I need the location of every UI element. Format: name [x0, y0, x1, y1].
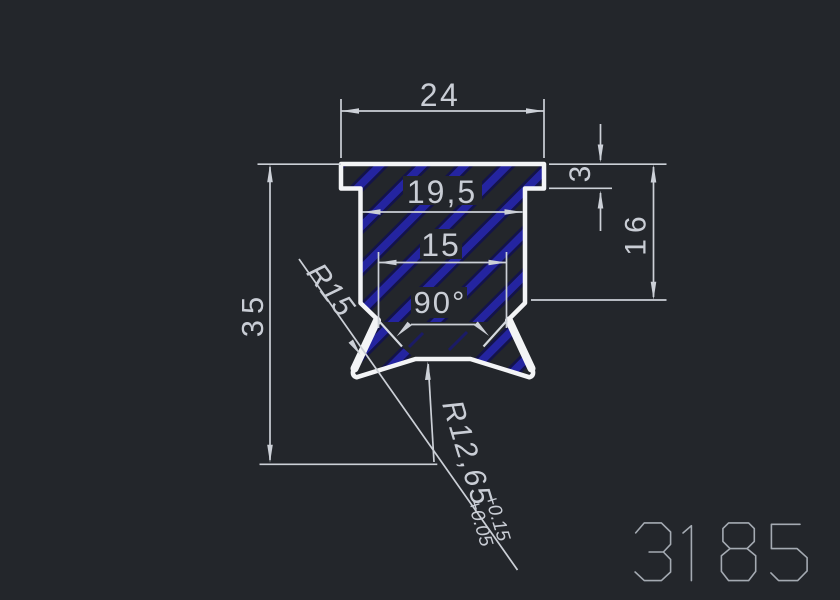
svg-text:3: 3 — [564, 166, 597, 183]
svg-text:90°: 90° — [414, 285, 467, 320]
svg-text:24: 24 — [420, 77, 461, 113]
svg-text:35: 35 — [235, 291, 270, 337]
svg-text:16: 16 — [620, 210, 653, 255]
svg-text:19,5: 19,5 — [407, 174, 477, 210]
svg-text:15: 15 — [421, 227, 461, 263]
